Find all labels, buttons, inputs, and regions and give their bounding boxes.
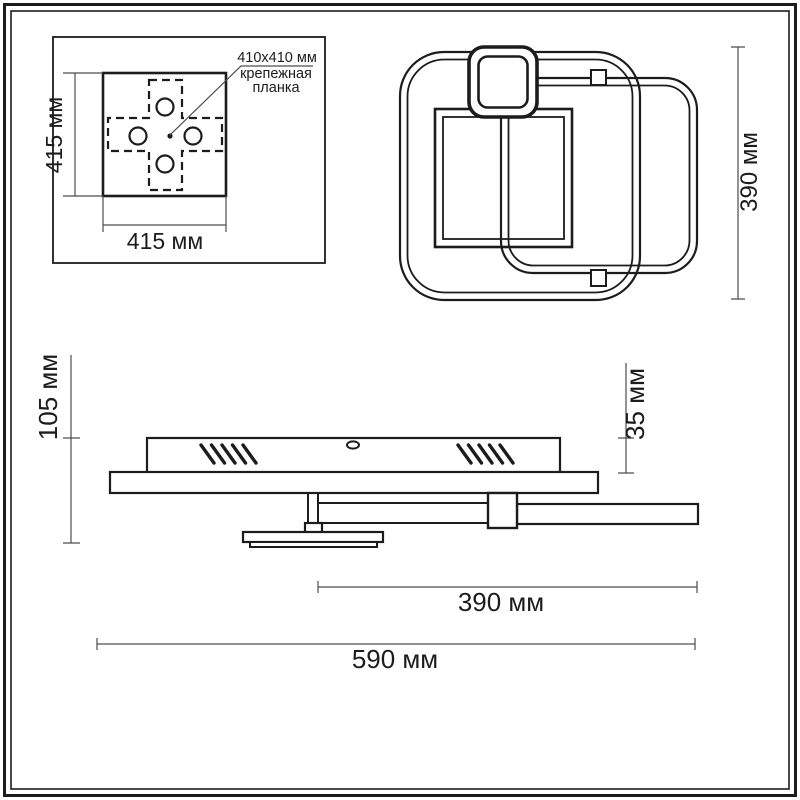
dim-415-left-extensions xyxy=(63,73,103,196)
clip-bottom xyxy=(591,270,606,286)
callout-text-line3: планка xyxy=(252,80,300,96)
base-plate xyxy=(110,472,598,493)
led-frame-middle-outer xyxy=(435,109,572,247)
side-view: 105 мм 35 мм 390 мм 590 мм xyxy=(33,354,698,674)
connector-block xyxy=(488,493,517,528)
technical-drawing-canvas: 410x410 мм крепежная планка 415 мм 415 м… xyxy=(0,0,800,800)
clip-top xyxy=(591,70,606,85)
mounting-plate-view: 410x410 мм крепежная планка 415 мм 415 м… xyxy=(41,37,325,263)
dim-label-35: 35 мм xyxy=(620,368,650,440)
screw-hole-top xyxy=(157,99,174,116)
led-bar-right xyxy=(517,504,698,524)
dim-label-590: 590 мм xyxy=(352,644,438,674)
dim-label-390-bottom: 390 мм xyxy=(458,587,544,617)
stem xyxy=(308,493,318,523)
callout-text-line1: 410x410 мм xyxy=(237,50,317,66)
screw-hole-left xyxy=(130,128,147,145)
screw-hole-right xyxy=(185,128,202,145)
disc-plate-bottom xyxy=(250,542,377,547)
screw-hole-bottom xyxy=(157,156,174,173)
vent-slots-right xyxy=(458,445,513,463)
dim-415-bottom-extensions xyxy=(103,196,226,232)
dim-105-line xyxy=(63,355,80,543)
vent-slots-left xyxy=(201,445,256,463)
dim-label-105: 105 мм xyxy=(33,354,63,440)
canopy-hole xyxy=(347,441,359,448)
dim-label-390-vertical: 390 мм xyxy=(736,132,763,212)
led-frame-middle-inner xyxy=(443,117,564,239)
led-bar-left xyxy=(318,503,490,523)
top-view: 390 мм xyxy=(400,47,763,300)
disc-plate-top xyxy=(243,532,383,542)
dim-label-415-horizontal: 415 мм xyxy=(127,228,203,254)
mount-plate-square xyxy=(103,73,226,196)
dim-label-415-vertical: 415 мм xyxy=(41,97,67,173)
